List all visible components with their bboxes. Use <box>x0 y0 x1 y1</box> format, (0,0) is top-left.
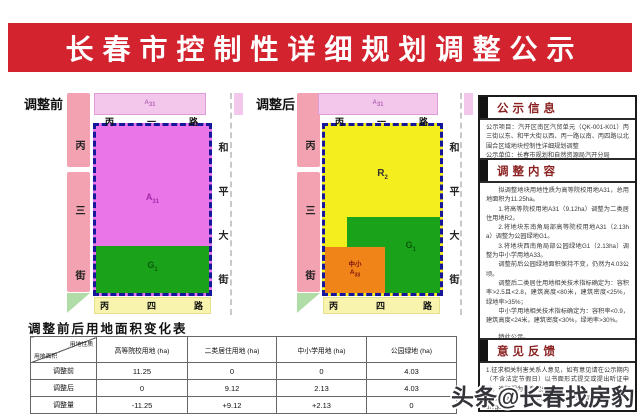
table-cell: 0 <box>188 363 277 380</box>
road-name-bingsi: 丙四路 <box>329 299 470 312</box>
notice-paragraph: 拟调整地块用地性质为高等院校用地A31，总用地面积为11.25ha。 <box>486 186 629 205</box>
toutiao-watermark: 头条@长春找房豹 <box>451 378 634 412</box>
section-header: 调整内容 <box>480 158 635 183</box>
table-cell: +9.12 <box>188 397 277 414</box>
parcel-north: A31 <box>94 93 206 115</box>
table-title: 调整前后用地面积变化表 <box>28 318 188 337</box>
notice-paragraph: 1.将高等院校用地A31（9.12ha）调整为二类居住用地R2。 <box>486 205 629 224</box>
page-title: 长春市控制性详细规划调整公示 <box>8 23 632 72</box>
road-name-bingsi: 丙四路 <box>100 299 241 312</box>
street-name-heping: 和平大街 <box>445 142 460 318</box>
column-header: 公园绿地 (ha) <box>367 337 457 363</box>
map-after-label: 调整后 <box>256 94 295 113</box>
header-bar <box>480 97 488 118</box>
parcel-label: A31 <box>372 100 383 108</box>
parcel-school: 中小 A33 <box>325 247 385 293</box>
row-label: 调整后 <box>31 380 97 397</box>
street-name-heping: 和平大街 <box>214 142 229 318</box>
table-cell: 9.12 <box>188 380 277 397</box>
notice-paragraph: 公示项目：汽开区南区汽贸单元（QK-001-K01）丙三街以东、和平大街以西、丙… <box>486 123 629 151</box>
notice-paragraph: 中小学用地相关技术指标确定为：容积率<0.9，建筑高度<24米，建筑密度<30%… <box>486 307 629 326</box>
planning-notice-poster: 长春市控制性详细规划调整公示 调整前 丙三街 A31 丙一路 A31 G1 和平… <box>0 0 640 415</box>
notice-paragraph: 调整前后公园绿地面积保持不变，仍然为4.03公顷。 <box>486 260 629 279</box>
notice-paragraph: 2.将地块东南角局部高等院校用地A31（2.13ha）调整为公园绿地G1。 <box>486 223 629 242</box>
parcel-label-g1: G1 <box>147 260 157 273</box>
section-title: 调整内容 <box>497 163 559 179</box>
section-adjust-content: 调整内容 拟调整地块用地性质为高等院校用地A31，总用地面积为11.25ha。 … <box>480 158 635 338</box>
table-cell: 4.03 <box>367 363 457 380</box>
table-header-row: 用地性质 用地面积 高等院校用地 (ha) 二类居住用地 (ha) 中小学用地 … <box>31 337 457 363</box>
road-name-bingyi: 丙一路 <box>105 115 231 128</box>
corner-label-type: 用地性质 <box>70 339 93 348</box>
street-name-bingsan: 丙三街 <box>71 140 86 335</box>
road-name-bingyi: 丙一路 <box>335 115 461 128</box>
header-bar <box>480 340 488 361</box>
map-before-label: 调整前 <box>24 94 63 113</box>
notice-paragraph: 公示单位：长春市规划和自然资源局汽开分局 <box>486 151 629 158</box>
table-row: 调整前 11.25 0 0 4.03 <box>31 363 457 380</box>
column-header: 二类居住用地 (ha) <box>188 337 277 363</box>
column-header: 高等院校用地 (ha) <box>97 337 188 363</box>
parcel-label: A31 <box>144 100 155 108</box>
table-row: 调整后 0 9.12 2.13 4.03 <box>31 380 457 397</box>
section-public-info: 公示信息 公示项目：汽开区南区汽贸单元（QK-001-K01）丙三街以东、和平大… <box>480 97 635 158</box>
parcel-label-school: 中小 A33 <box>349 261 362 279</box>
area-change-table: 用地性质 用地面积 高等院校用地 (ha) 二类居住用地 (ha) 中小学用地 … <box>30 336 457 414</box>
parcel-label-g1: G1 <box>406 240 416 253</box>
section-title: 意见反馈 <box>497 343 559 359</box>
parcel-green-before: G1 <box>96 246 209 293</box>
section-body: 拟调整地块用地性质为高等院校用地A31，总用地面积为11.25ha。 1.将高等… <box>480 183 635 338</box>
parcel-label-r2: R2 <box>325 168 440 181</box>
section-header: 公示信息 <box>480 97 635 120</box>
parcel-corner <box>464 93 473 115</box>
notice-panel: 公示信息 公示项目：汽开区南区汽贸单元（QK-001-K01）丙三街以东、和平大… <box>478 95 637 412</box>
header-bar <box>480 160 488 181</box>
parcel-main-after: R2 G1 中小 A33 <box>322 123 443 296</box>
table-cell: -11.25 <box>97 397 188 414</box>
table-cell: 0 <box>277 363 367 380</box>
parcel-corner <box>234 93 243 115</box>
table-cell: 0 <box>367 397 457 414</box>
section-header: 意见反馈 <box>480 338 635 363</box>
corner-label-area: 用地面积 <box>34 351 57 360</box>
notice-paragraph: 3.将地块西南角局部公园绿地G1（2.13ha）调整为中小学用地A33。 <box>486 242 629 261</box>
section-body: 公示项目：汽开区南区汽贸单元（QK-001-K01）丙三街以东、和平大街以西、丙… <box>480 120 635 158</box>
row-label: 调整前 <box>31 363 97 380</box>
section-title: 公示信息 <box>497 100 559 116</box>
notice-paragraph: 调整后二类居住用地相关技术指标确定为：容积率>2.5且<2.8，建筑高度<80米… <box>486 279 629 307</box>
row-label: 调整量 <box>31 397 97 414</box>
table-row: 调整量 -11.25 +9.12 +2.13 0 <box>31 397 457 414</box>
parcel-main-before: A31 G1 <box>93 123 212 296</box>
table-cell: 0 <box>97 380 188 397</box>
parcel-north: A31 <box>318 93 438 115</box>
table-cell: 2.13 <box>277 380 367 397</box>
table-cell: 4.03 <box>367 380 457 397</box>
table-corner-cell: 用地性质 用地面积 <box>31 337 97 363</box>
table-cell: +2.13 <box>277 397 367 414</box>
column-header: 中小学用地 (ha) <box>277 337 367 363</box>
street-name-bingsan: 丙三街 <box>301 140 316 335</box>
parcel-label-a31: A31 <box>96 192 209 205</box>
table-cell: 11.25 <box>97 363 188 380</box>
